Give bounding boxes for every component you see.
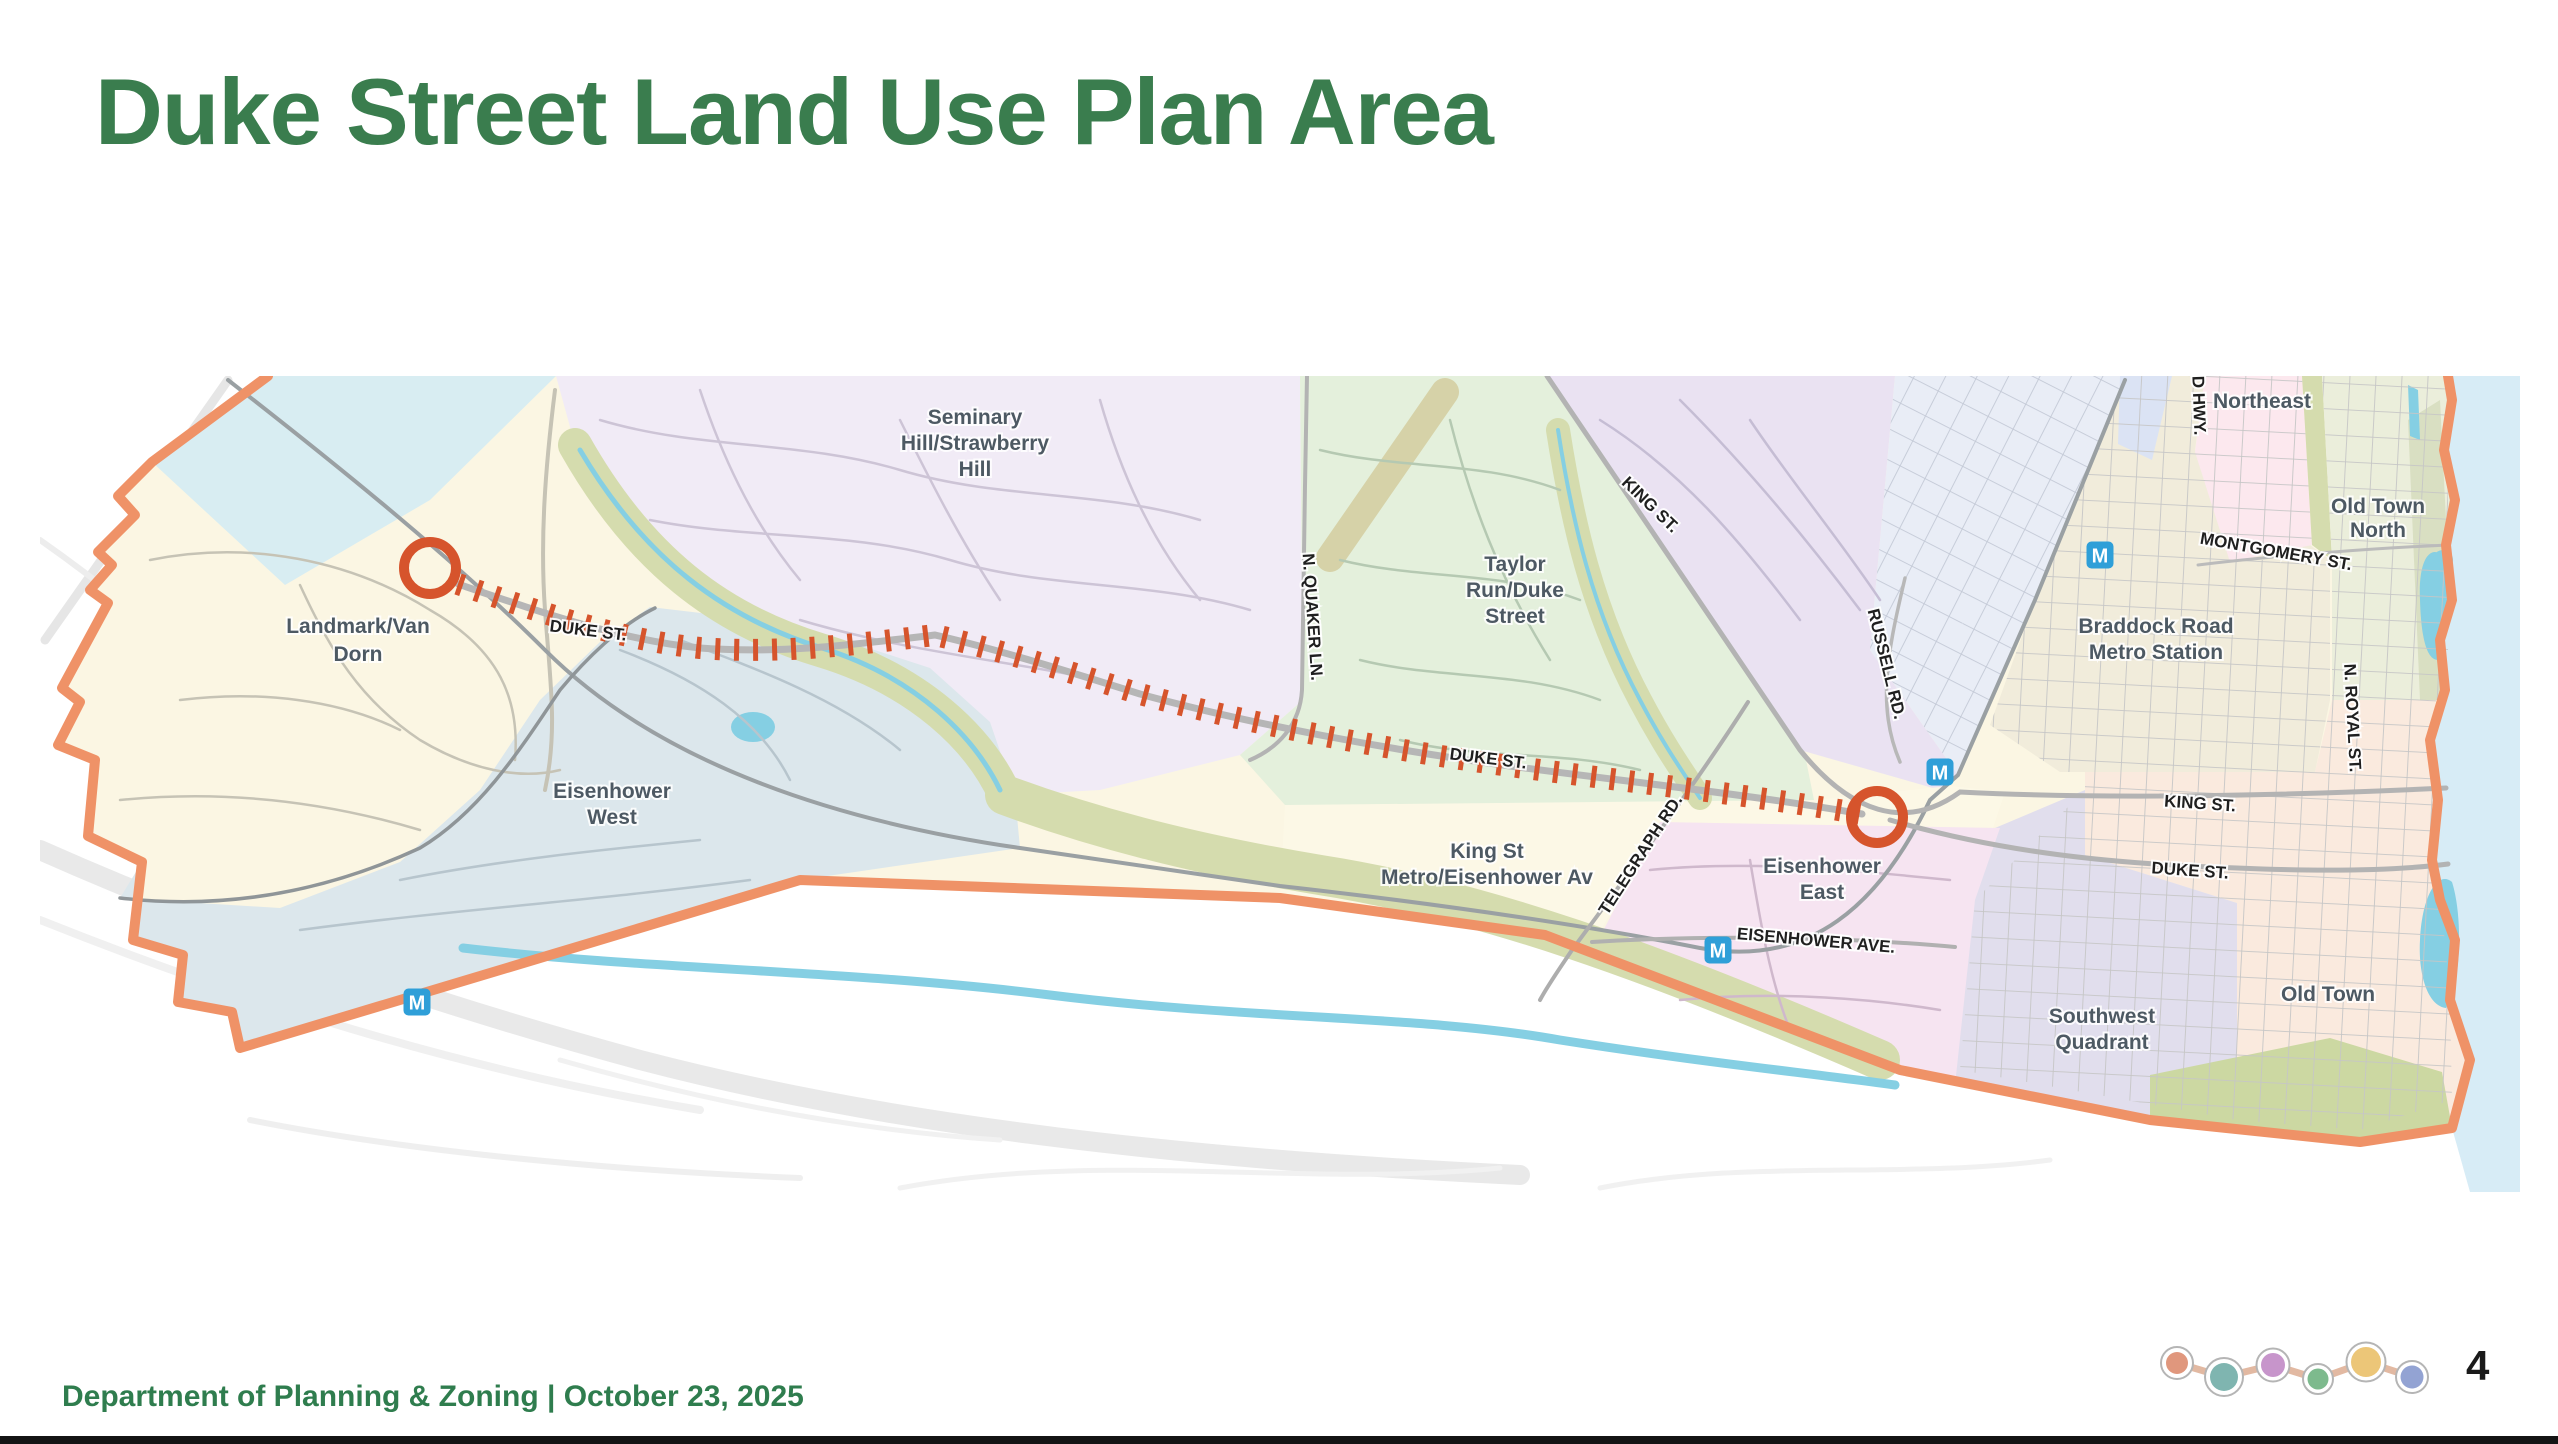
label-taylor-run: Run/Duke [1466, 579, 1564, 602]
nav-dot-3 [2261, 1353, 2285, 1377]
footer-text: Department of Planning & Zoning | Octobe… [62, 1380, 804, 1414]
label-seminary: Seminary [928, 406, 1023, 429]
page-number: 4 [2466, 1342, 2489, 1390]
label-old-town-north: North [2350, 519, 2406, 542]
metro-m: M [1710, 941, 1727, 963]
metro-marker-braddock: M [2087, 542, 2114, 569]
metro-m: M [409, 993, 426, 1015]
label-southwest: Southwest [2049, 1005, 2155, 1028]
label-landmark: Dorn [334, 643, 383, 666]
label-landmark: Landmark/Van [286, 615, 430, 638]
label-old-town: Old Town [2281, 983, 2375, 1006]
label-kingst-metro: King St [1450, 840, 1524, 863]
slide: Duke Street Land Use Plan Area [0, 0, 2558, 1444]
label-eisenhower-east: Eisenhower [1763, 855, 1881, 878]
nav-dot-4 [2308, 1369, 2329, 1390]
label-eisenhower-west: West [587, 806, 637, 829]
metro-marker-van-dorn: M [404, 989, 431, 1016]
nav-dot-5 [2351, 1347, 2381, 1377]
label-braddock: Metro Station [2089, 641, 2223, 664]
nav-dot-2 [2210, 1363, 2238, 1391]
label-taylor-run: Street [1485, 605, 1545, 628]
metro-marker-king-st: M [1927, 759, 1954, 786]
nav-dot-6 [2401, 1366, 2424, 1389]
label-northeast: Northeast [2213, 390, 2311, 413]
label-southwest: Quadrant [2055, 1031, 2148, 1054]
label-kingst-metro: Metro/Eisenhower Av [1381, 866, 1593, 889]
label-braddock: Braddock Road [2078, 615, 2233, 638]
label-seminary: Hill/Strawberry [901, 432, 1050, 455]
metro-marker-eisenhower: M [1705, 937, 1732, 964]
land-use-map: M M M M Landmark/Van Dorn Ei [0, 0, 2558, 1444]
nav-dots [2161, 1343, 2428, 1397]
label-eisenhower-west: Eisenhower [553, 780, 671, 803]
nav-dot-1 [2166, 1352, 2188, 1374]
bottom-bar [0, 1436, 2558, 1444]
label-old-town-north: Old Town [2331, 495, 2425, 518]
label-taylor-run: Taylor [1484, 553, 1545, 576]
metro-m: M [2092, 546, 2109, 568]
metro-m: M [1932, 763, 1949, 785]
label-seminary: Hill [959, 458, 992, 481]
label-eisenhower-east: East [1800, 881, 1844, 904]
